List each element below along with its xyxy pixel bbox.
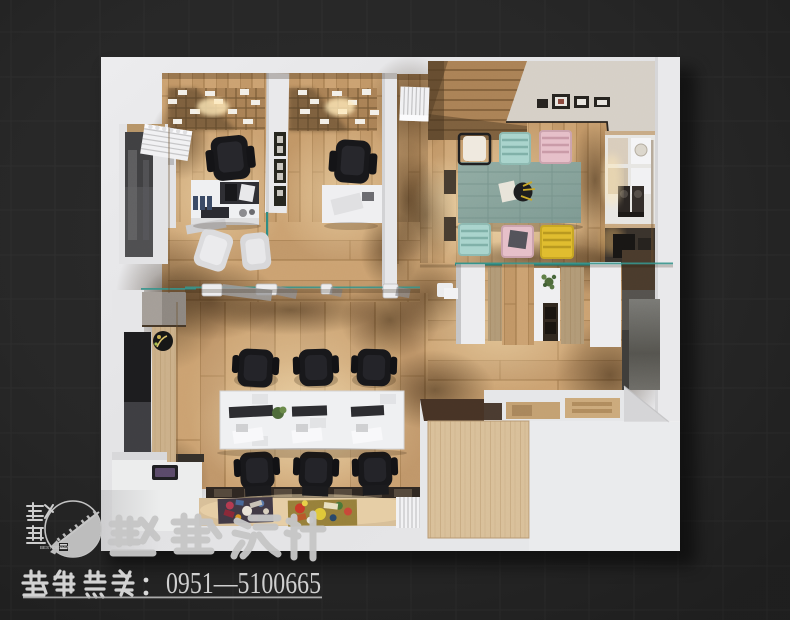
svg-text:0951—5100665: 0951—5100665 (166, 565, 321, 600)
svg-text:BEST DESIGN: BEST DESIGN (40, 545, 70, 550)
